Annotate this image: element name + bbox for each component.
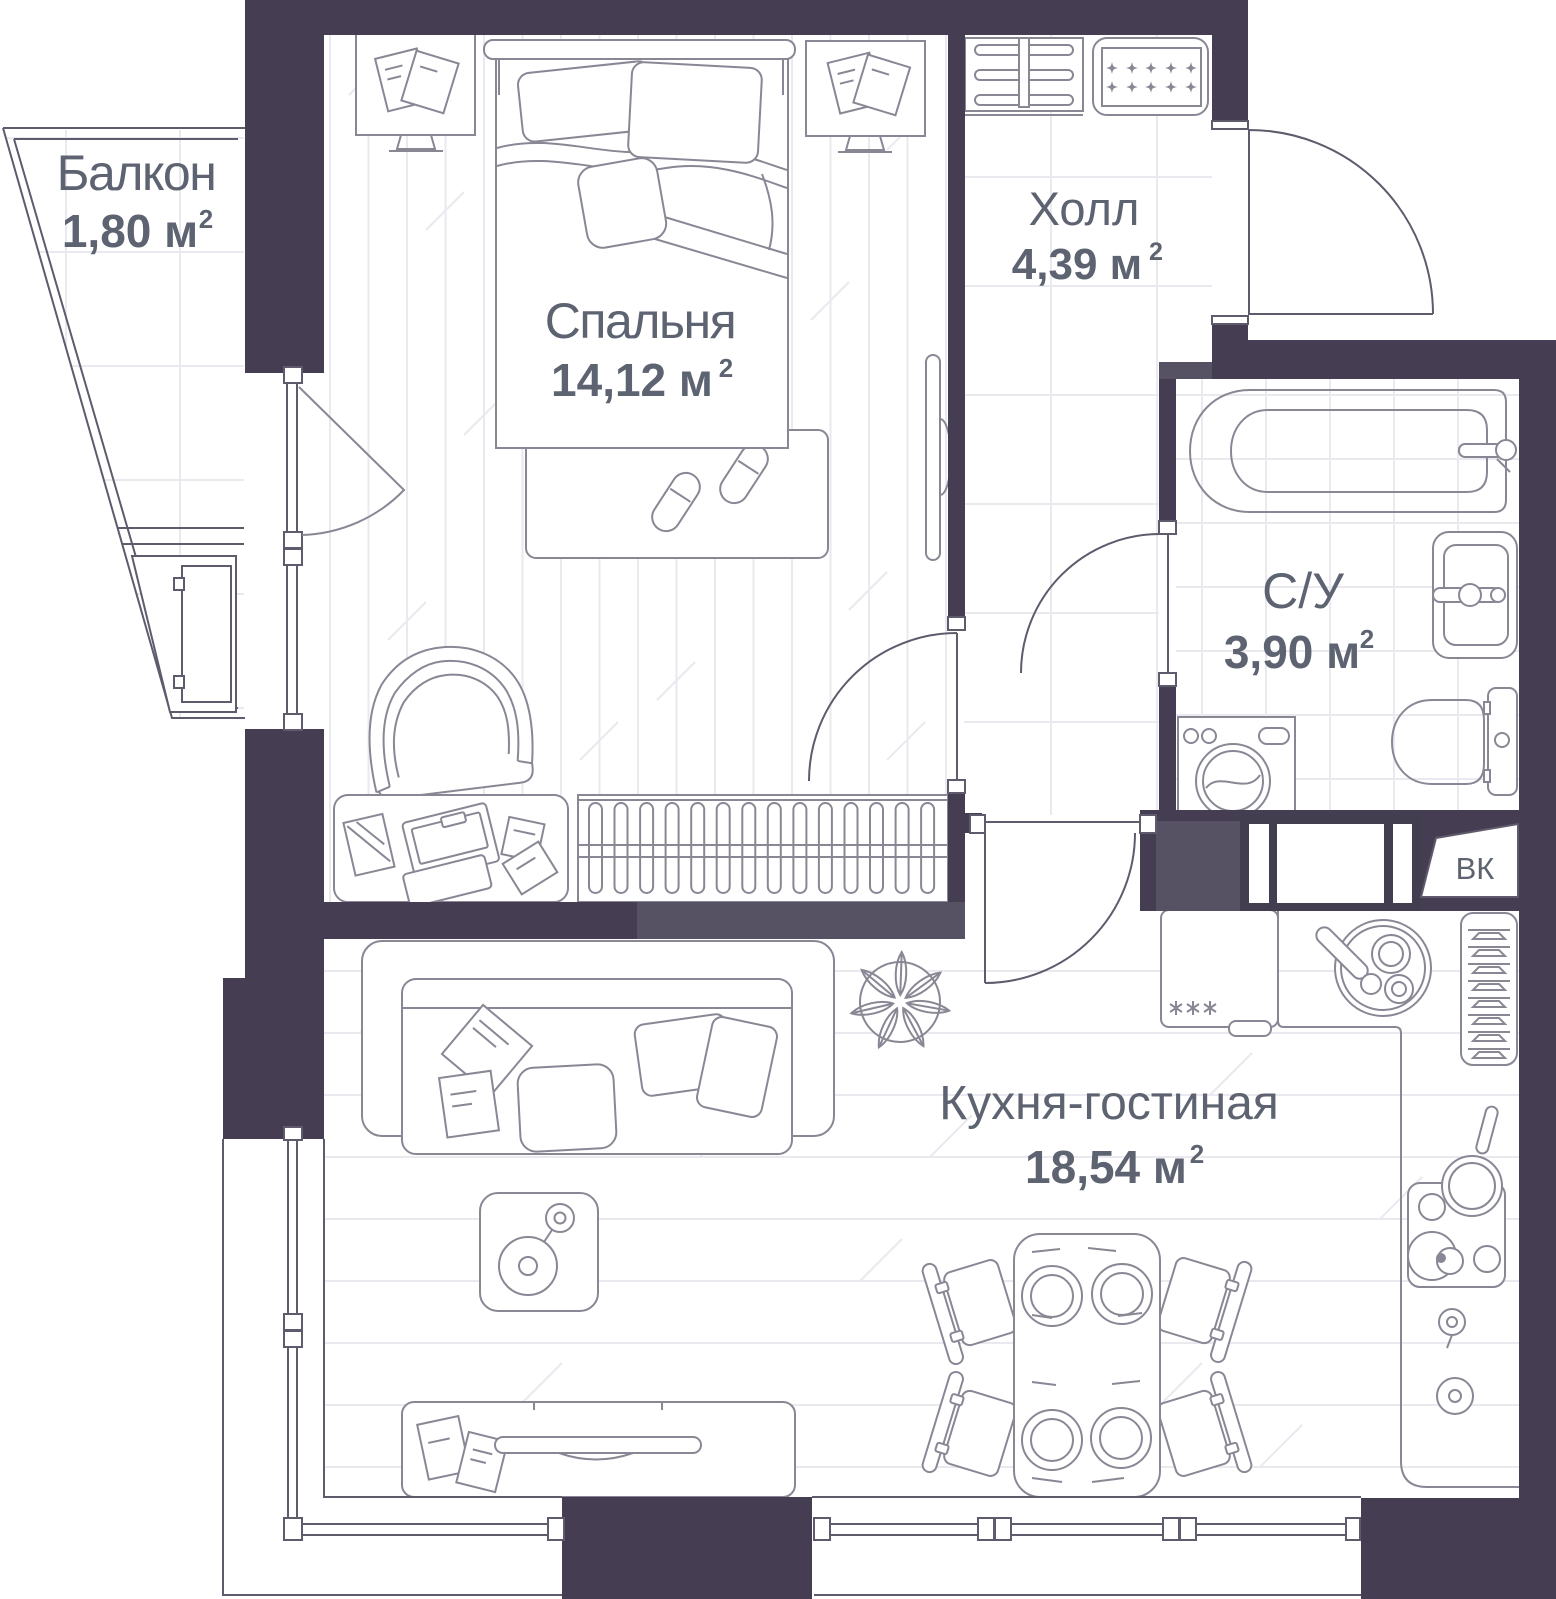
svg-text:Спальня: Спальня: [545, 293, 735, 349]
svg-text:4,39 м: 4,39 м: [1012, 240, 1142, 289]
svg-text:Холл: Холл: [1029, 182, 1140, 235]
svg-text:1,80 м: 1,80 м: [62, 205, 198, 257]
svg-text:18,54 м: 18,54 м: [1025, 1141, 1187, 1193]
svg-text:Кухня-гостиная: Кухня-гостиная: [939, 1077, 1279, 1130]
svg-text:ВК: ВК: [1456, 851, 1495, 886]
svg-text:Балкон: Балкон: [57, 145, 216, 201]
svg-text:2: 2: [1149, 238, 1163, 266]
svg-text:2: 2: [1190, 1139, 1204, 1169]
svg-text:2: 2: [199, 204, 213, 234]
svg-text:2: 2: [1360, 624, 1374, 654]
svg-text:2: 2: [719, 353, 733, 383]
svg-text:3,90 м: 3,90 м: [1224, 626, 1360, 678]
svg-text:С/У: С/У: [1262, 563, 1344, 619]
svg-text:14,12 м: 14,12 м: [551, 354, 713, 406]
